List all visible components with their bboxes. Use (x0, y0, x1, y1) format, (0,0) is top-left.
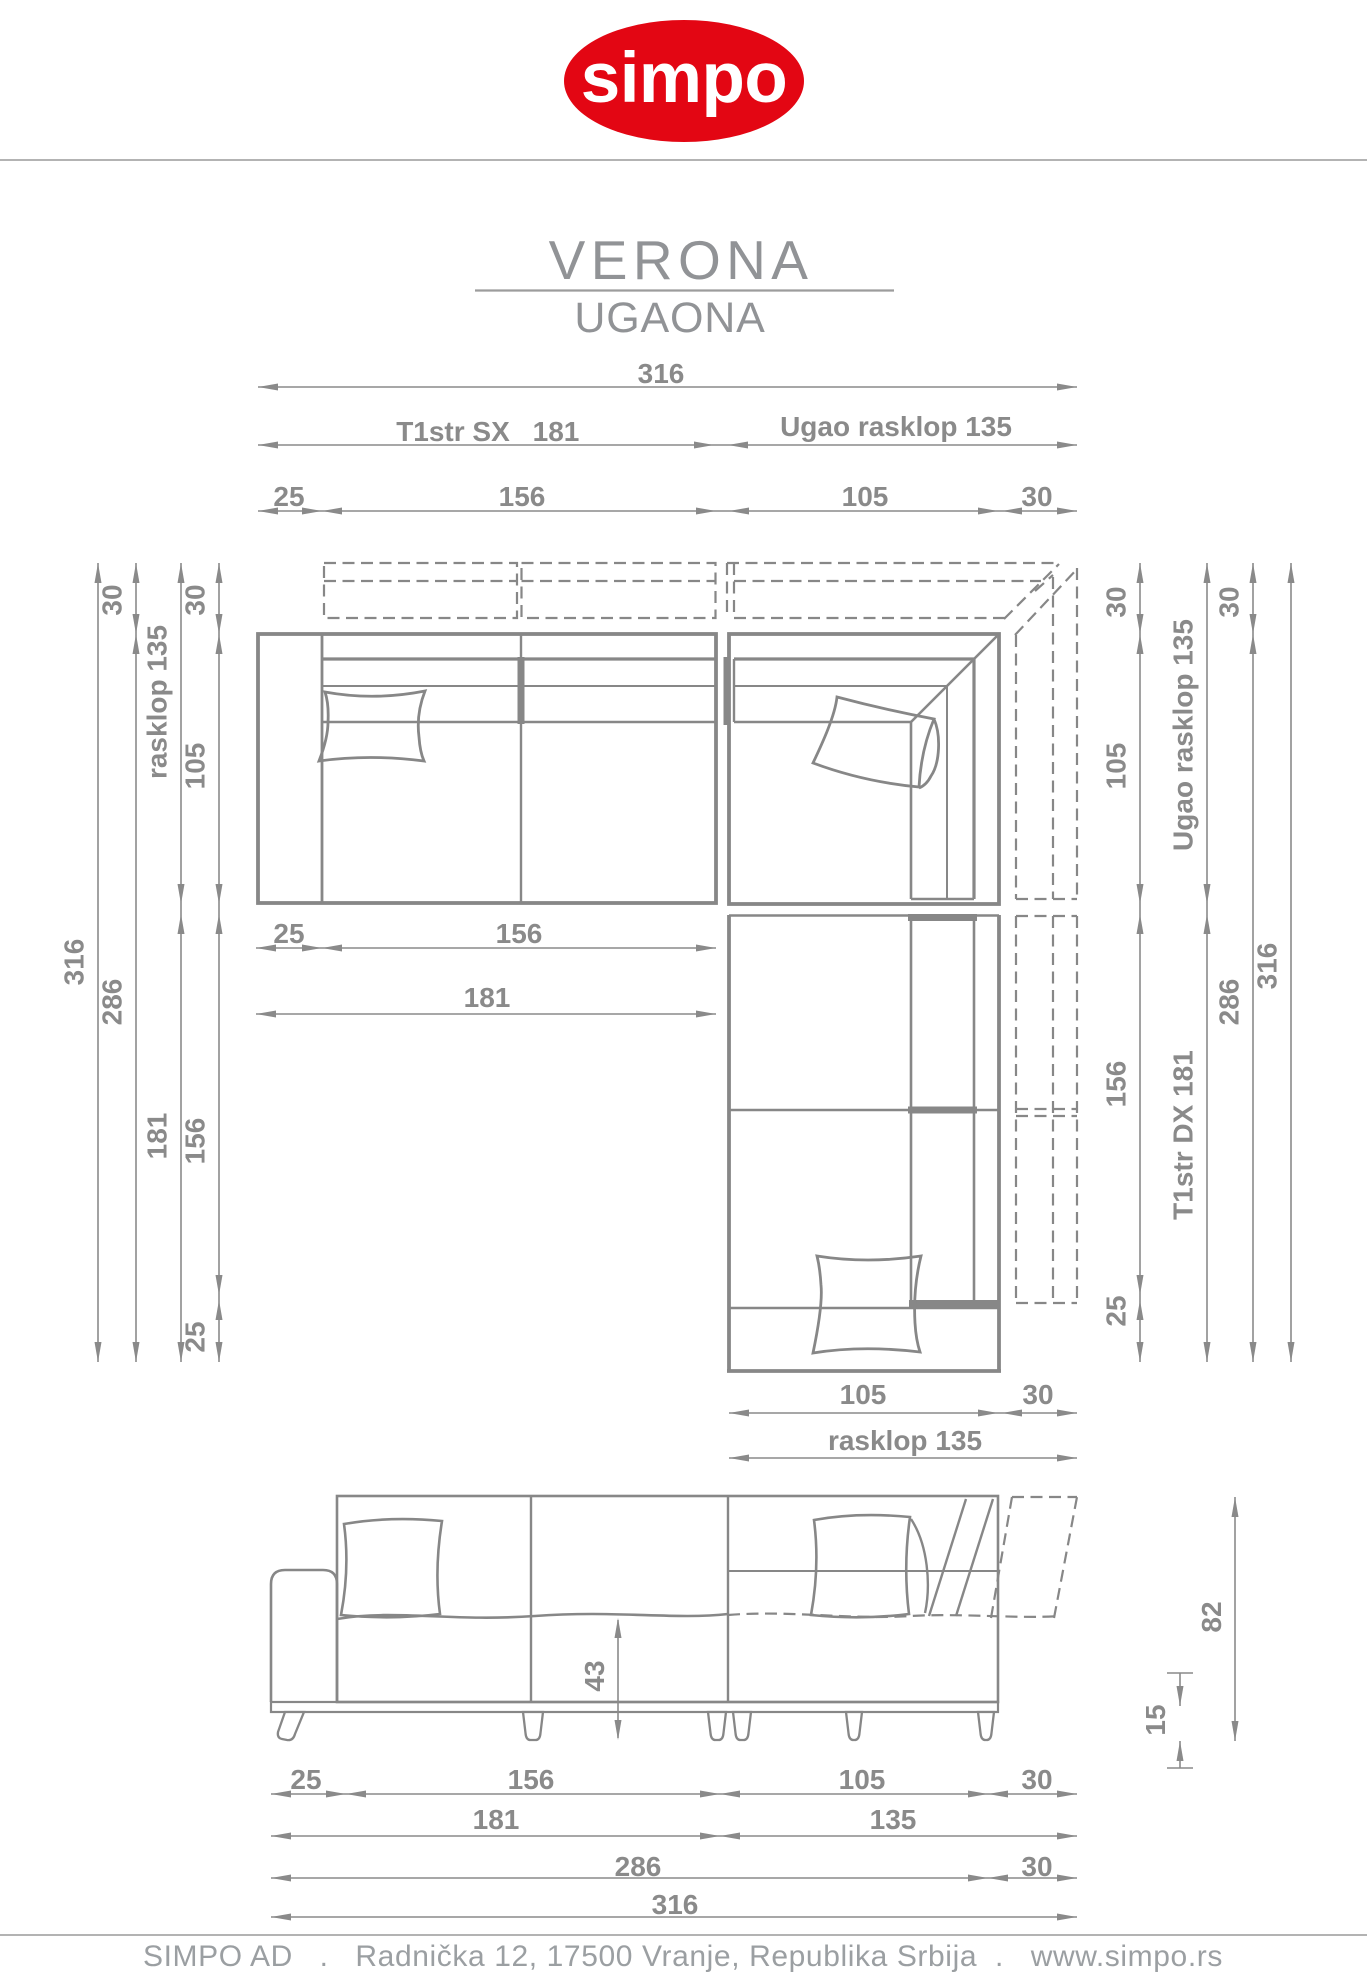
svg-text:135: 135 (870, 1804, 917, 1835)
svg-text:286: 286 (615, 1851, 662, 1882)
svg-text:156: 156 (508, 1764, 555, 1795)
svg-text:30: 30 (97, 584, 128, 615)
svg-text:82: 82 (1196, 1601, 1227, 1632)
svg-text:VERONA: VERONA (549, 229, 814, 291)
svg-text:105: 105 (1101, 743, 1132, 790)
svg-text:105: 105 (842, 481, 889, 512)
svg-text:156: 156 (499, 481, 546, 512)
svg-text:30: 30 (1214, 586, 1245, 617)
svg-text:25: 25 (1101, 1295, 1132, 1326)
svg-text:156: 156 (1101, 1061, 1132, 1108)
svg-text:25: 25 (290, 1764, 321, 1795)
svg-text:Ugao rasklop 135: Ugao rasklop 135 (1168, 619, 1199, 851)
svg-text:286: 286 (1214, 979, 1245, 1026)
svg-text:rasklop 135: rasklop 135 (142, 625, 173, 779)
svg-text:43: 43 (579, 1660, 610, 1691)
svg-text:105: 105 (180, 743, 211, 790)
svg-text:SIMPO AD . Radnička 12, 17: SIMPO AD . Radnička 12, 17500 Vranje, Re… (143, 1940, 1223, 1973)
svg-text:156: 156 (180, 1118, 211, 1165)
svg-text:105: 105 (839, 1764, 886, 1795)
svg-text:181: 181 (533, 416, 580, 447)
svg-text:316: 316 (59, 939, 90, 986)
svg-text:30: 30 (1101, 586, 1132, 617)
svg-text:30: 30 (1021, 1851, 1052, 1882)
svg-text:316: 316 (638, 358, 685, 389)
svg-text:286: 286 (97, 979, 128, 1026)
svg-text:316: 316 (1252, 943, 1283, 990)
svg-text:25: 25 (180, 1321, 211, 1352)
svg-text:181: 181 (142, 1113, 173, 1160)
svg-text:30: 30 (180, 584, 211, 615)
svg-text:30: 30 (1021, 1764, 1052, 1795)
svg-text:30: 30 (1022, 1379, 1053, 1410)
svg-text:Ugao rasklop 135: Ugao rasklop 135 (780, 411, 1012, 442)
svg-text:181: 181 (473, 1804, 520, 1835)
svg-text:25: 25 (273, 481, 304, 512)
svg-text:T1str SX: T1str SX (396, 416, 510, 447)
svg-text:181: 181 (464, 982, 511, 1013)
svg-text:T1str DX 181: T1str DX 181 (1168, 1050, 1199, 1220)
svg-text:105: 105 (840, 1379, 887, 1410)
svg-text:UGAONA: UGAONA (574, 294, 765, 342)
svg-text:156: 156 (496, 918, 543, 949)
svg-text:simpo: simpo (581, 39, 788, 118)
svg-text:25: 25 (273, 918, 304, 949)
svg-text:316: 316 (652, 1889, 699, 1920)
svg-text:rasklop 135: rasklop 135 (828, 1425, 982, 1456)
svg-text:30: 30 (1021, 481, 1052, 512)
svg-text:15: 15 (1140, 1704, 1171, 1735)
